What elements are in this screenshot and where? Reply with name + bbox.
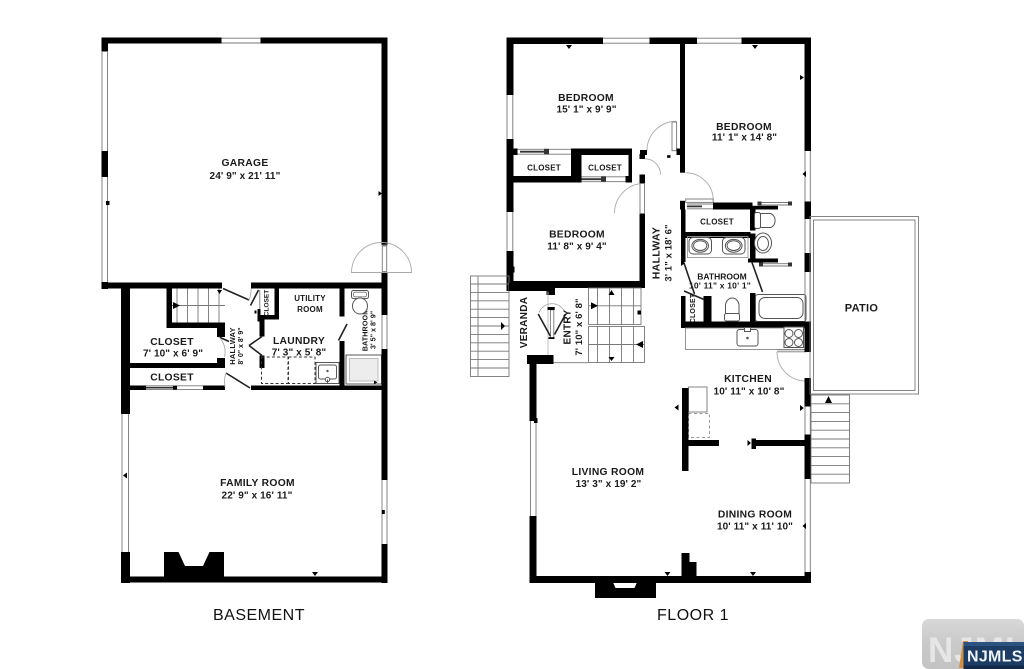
svg-text:CLOSET: CLOSET [150, 373, 194, 384]
svg-text:CLOSET: CLOSET [527, 164, 561, 173]
svg-text:CLOSET: CLOSET [150, 337, 194, 348]
svg-text:ROOM: ROOM [297, 305, 323, 314]
svg-text:CLOSET: CLOSET [690, 293, 697, 323]
svg-text:13' 3" x 19' 2": 13' 3" x 19' 2" [576, 479, 642, 490]
svg-text:BEDROOM: BEDROOM [558, 93, 614, 104]
svg-text:BEDROOM: BEDROOM [549, 230, 605, 241]
svg-text:8' 0" x 8' 9": 8' 0" x 8' 9" [238, 327, 245, 364]
svg-text:ENTRY: ENTRY [563, 309, 574, 344]
svg-text:CLOSET: CLOSET [588, 164, 622, 173]
svg-text:3' 1" x 18' 6": 3' 1" x 18' 6" [664, 224, 675, 281]
svg-text:10' 11" x 10' 1": 10' 11" x 10' 1" [689, 281, 751, 291]
svg-text:GARAGE: GARAGE [222, 158, 269, 169]
svg-text:LAUNDRY: LAUNDRY [273, 336, 325, 347]
svg-text:PATIO: PATIO [845, 303, 879, 315]
svg-text:11' 8" x 9' 4": 11' 8" x 9' 4" [547, 242, 607, 253]
svg-text:VERANDA: VERANDA [519, 297, 530, 349]
svg-text:24' 9" x 21' 11": 24' 9" x 21' 11" [210, 171, 281, 182]
svg-text:FAMILY ROOM: FAMILY ROOM [220, 478, 295, 489]
svg-text:15' 1" x 9' 9": 15' 1" x 9' 9" [556, 105, 616, 116]
svg-text:BASEMENT: BASEMENT [213, 607, 305, 624]
svg-text:KITCHEN: KITCHEN [724, 374, 772, 385]
svg-text:HALLWAY: HALLWAY [651, 227, 663, 279]
svg-text:BEDROOM: BEDROOM [716, 122, 772, 133]
svg-text:CLOSET: CLOSET [264, 290, 271, 316]
svg-text:NJMLS: NJMLS [967, 649, 1023, 666]
svg-text:7' 10" x 6' 9": 7' 10" x 6' 9" [143, 349, 203, 360]
svg-text:7' 10" x 6' 8": 7' 10" x 6' 8" [574, 298, 585, 355]
svg-text:FLOOR 1: FLOOR 1 [657, 607, 729, 624]
svg-text:22' 9" x 16' 11": 22' 9" x 16' 11" [222, 491, 293, 502]
svg-text:HALLWAY: HALLWAY [228, 327, 237, 364]
svg-text:11' 1" x 14' 8": 11' 1" x 14' 8" [712, 133, 777, 144]
svg-text:CLOSET: CLOSET [700, 218, 734, 227]
svg-text:10' 11" x 10' 8": 10' 11" x 10' 8" [714, 387, 785, 398]
svg-text:DINING ROOM: DINING ROOM [718, 510, 792, 521]
svg-text:LIVING ROOM: LIVING ROOM [572, 467, 645, 478]
svg-text:10' 11" x 11' 10": 10' 11" x 11' 10" [717, 522, 793, 533]
svg-text:UTILITY: UTILITY [294, 294, 326, 303]
svg-text:3' 5" x 8' 9": 3' 5" x 8' 9" [369, 311, 378, 349]
